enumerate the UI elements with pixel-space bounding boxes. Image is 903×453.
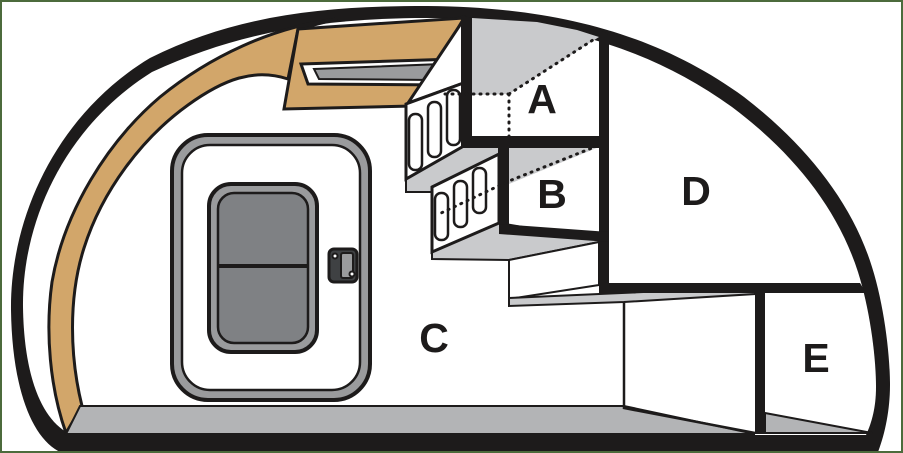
door-latch-screw-top <box>333 254 338 259</box>
cross-section-diagram: A B C D E <box>2 2 903 453</box>
label-compartment-e: E <box>802 335 829 381</box>
label-compartment-a: A <box>527 76 557 122</box>
wall-ab-d <box>599 29 609 291</box>
wall-e-left <box>755 291 765 434</box>
lower-bin-slot-3 <box>473 168 486 213</box>
upper-bin-slot-3 <box>447 90 460 145</box>
lower-bin-slot-1 <box>435 193 448 240</box>
wall-b-left <box>499 147 509 234</box>
label-compartment-c: C <box>419 315 449 361</box>
label-compartment-b: B <box>537 171 567 217</box>
wall-a-left <box>461 15 472 148</box>
shelf-a-b <box>461 136 609 148</box>
shelf-d-bottom <box>599 283 866 293</box>
label-compartment-d: D <box>681 168 711 214</box>
diagram-canvas: A B C D E <box>0 0 903 453</box>
upper-bin-slot-2 <box>428 102 441 157</box>
entry-door <box>172 135 370 400</box>
door-latch <box>329 249 357 282</box>
door-latch-screw-bottom <box>350 272 355 277</box>
upper-bin-slot-1 <box>409 114 422 170</box>
